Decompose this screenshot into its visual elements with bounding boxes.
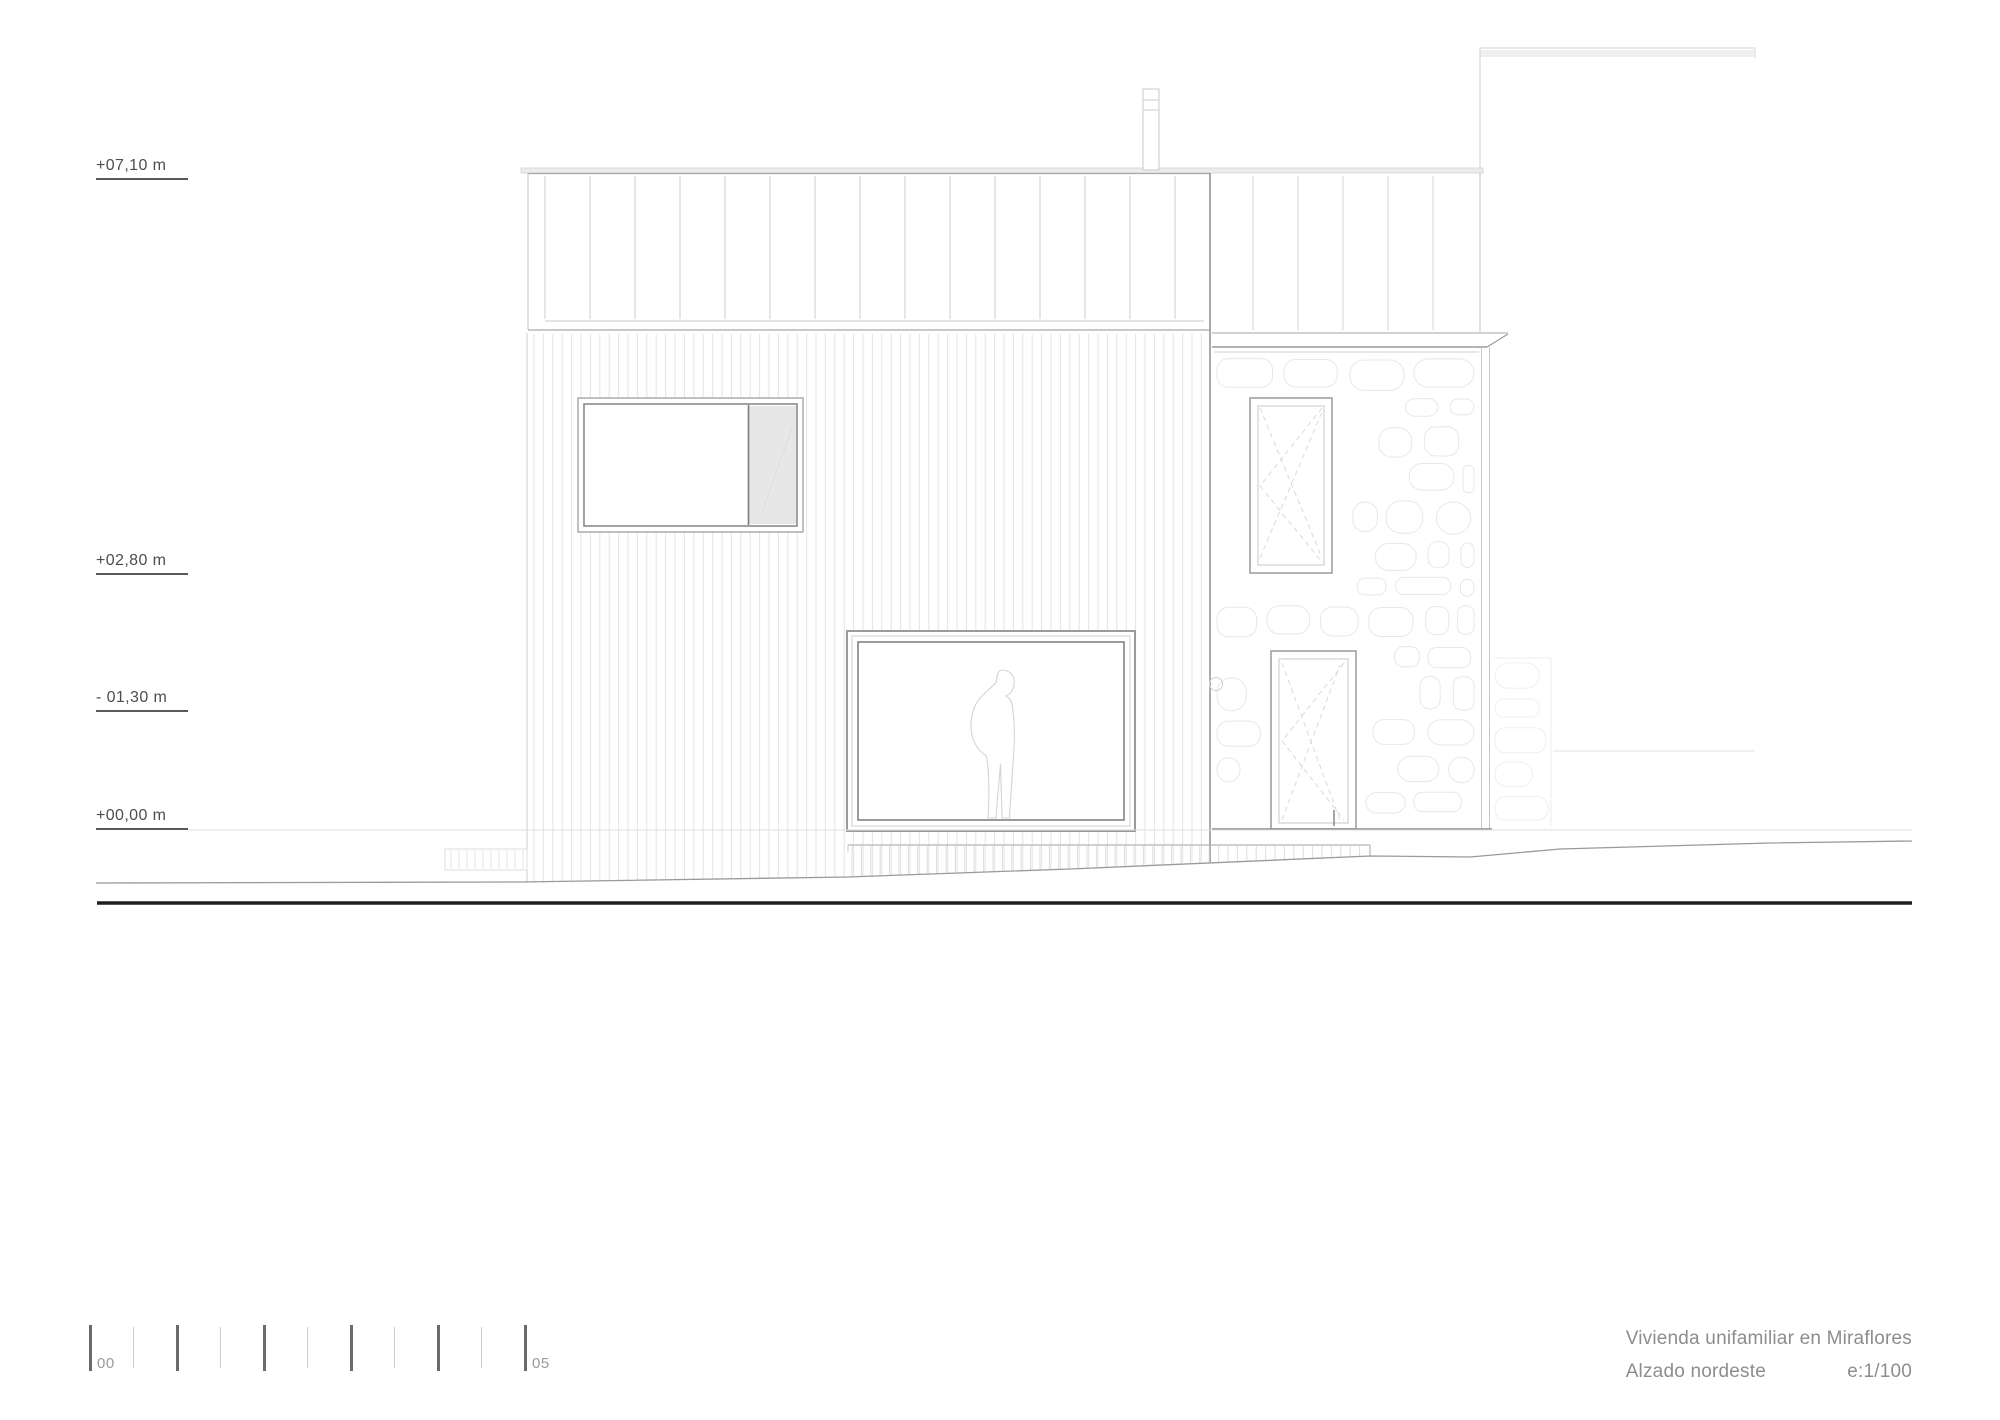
- scale-tick: [524, 1325, 527, 1371]
- project-title: Vivienda unifamiliar en Miraflores: [1626, 1328, 1912, 1350]
- main-roof-band: [528, 173, 1210, 330]
- picture-window: [847, 631, 1135, 831]
- scale-tick: [89, 1325, 92, 1371]
- scale-tick: [263, 1325, 266, 1371]
- level-marker: +07,10 m: [96, 157, 188, 180]
- scale-bar: 00 05: [89, 1325, 529, 1375]
- rear-roof-band: [1212, 173, 1508, 347]
- level-label: +02,80 m: [96, 552, 188, 570]
- level-rule: [96, 178, 188, 180]
- entrance-door: [1271, 651, 1356, 829]
- scale-end-label: 05: [532, 1355, 550, 1372]
- level-rule: [96, 573, 188, 575]
- level-marker: - 01,30 m: [96, 689, 188, 712]
- upper-window: [578, 398, 803, 532]
- ground-grate: [445, 849, 527, 870]
- chimney: [1143, 89, 1159, 170]
- level-label: +00,00 m: [96, 807, 188, 825]
- scale-tick: [350, 1325, 353, 1371]
- level-label: - 01,30 m: [96, 689, 188, 707]
- title-block: Vivienda unifamiliar en Miraflores Alzad…: [1626, 1328, 1912, 1383]
- scale-tick: [394, 1327, 395, 1368]
- level-rule: [96, 828, 188, 830]
- scale-tick: [437, 1325, 440, 1371]
- level-marker: +02,80 m: [96, 552, 188, 575]
- scale-start-label: 00: [97, 1355, 115, 1372]
- stone-window: [1250, 398, 1332, 573]
- level-rule: [96, 710, 188, 712]
- drawing-title: Alzado nordeste: [1626, 1361, 1766, 1383]
- elevation-drawing: [0, 0, 2000, 1420]
- deck-strip: [848, 845, 1370, 878]
- scale-tick: [307, 1327, 308, 1368]
- corner-post: [1482, 347, 1490, 828]
- level-marker: +00,00 m: [96, 807, 188, 830]
- background-building: [1480, 48, 1755, 751]
- level-label: +07,10 m: [96, 157, 188, 175]
- scale-tick: [176, 1325, 179, 1371]
- window-shutter-panel: [749, 406, 796, 524]
- scale-tick: [220, 1327, 221, 1368]
- drawing-sheet: +07,10 m+02,80 m- 01,30 m+00,00 m 00 05 …: [0, 0, 2000, 1420]
- scale-tick: [133, 1327, 134, 1368]
- roof-coping: [521, 168, 1483, 173]
- drawing-scale: e:1/100: [1847, 1361, 1912, 1383]
- scale-tick: [481, 1327, 482, 1368]
